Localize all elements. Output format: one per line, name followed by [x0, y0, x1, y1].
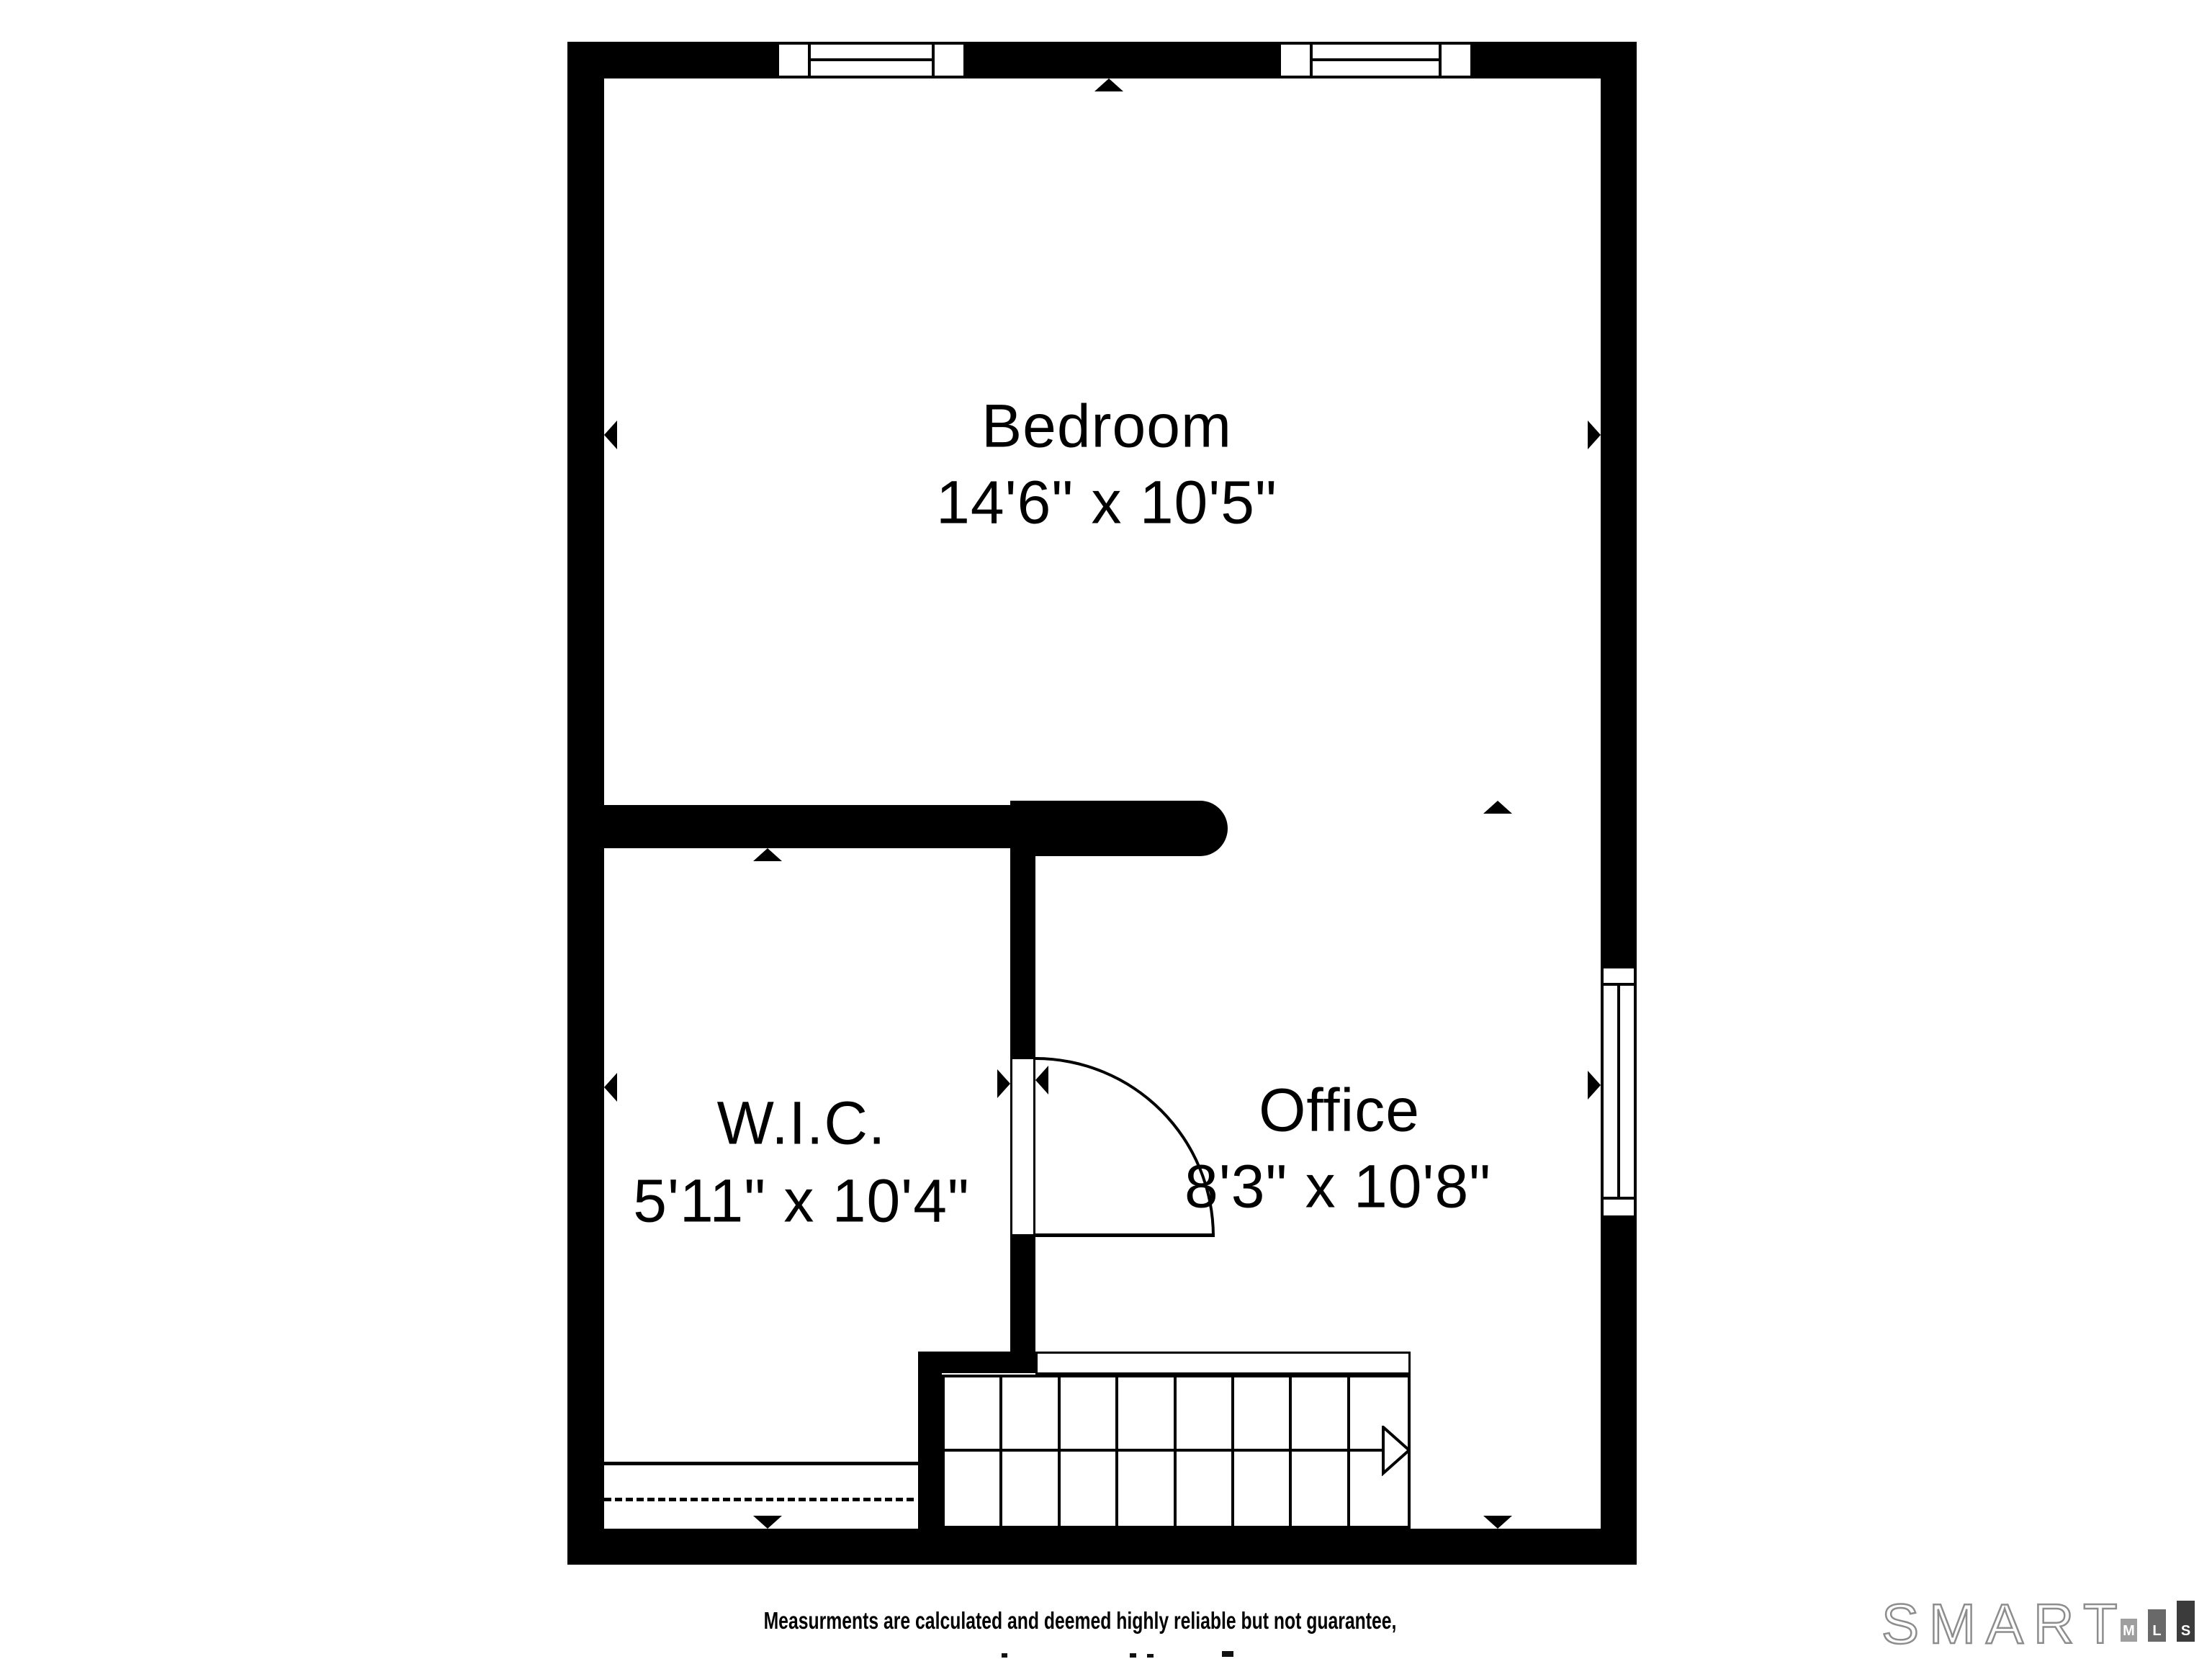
- dimension-arrow-down-icon: [753, 1516, 782, 1529]
- window-jamb-line: [1439, 45, 1442, 76]
- stair-tread: [1292, 1377, 1349, 1526]
- stair-direction-line: [942, 1449, 1386, 1452]
- stair-tread: [1177, 1377, 1234, 1526]
- clipped-text-mark: [1002, 1653, 1007, 1658]
- exterior-wall-left: [567, 42, 604, 1565]
- stair-tread: [945, 1377, 1002, 1526]
- room-dims-wic: 5'11" x 10'4": [633, 1166, 969, 1236]
- room-name-wic: W.I.C.: [717, 1089, 886, 1159]
- floor-plan-page: Bedroom 14'6" x 10'5" W.I.C. 5'11" x 10'…: [0, 0, 2212, 1659]
- stair-tread: [1118, 1377, 1176, 1526]
- smartmls-logo-l-block: L: [2148, 1609, 2166, 1642]
- room-dims-office: 8'3" x 10'8": [1184, 1152, 1491, 1222]
- stair-wall-left: [918, 1352, 942, 1529]
- stair-tread: [1061, 1377, 1118, 1526]
- room-name-office: Office: [1259, 1076, 1420, 1146]
- dimension-arrow-left-icon: [604, 1073, 617, 1102]
- stair-tread: [1234, 1377, 1292, 1526]
- logo-letter-m: M: [2123, 1623, 2135, 1640]
- dimension-arrow-down-icon: [1483, 1516, 1512, 1529]
- smartmls-logo-wordmark: SMART: [1881, 1591, 2128, 1657]
- dimension-arrow-left-icon: [1035, 1066, 1048, 1094]
- closet-shelf-line: [604, 1462, 918, 1465]
- stair-tread: [1002, 1377, 1060, 1526]
- clipped-text-mark: [1147, 1654, 1154, 1658]
- exterior-wall-bottom: [567, 1529, 1637, 1565]
- window-sash-line: [1617, 986, 1620, 1198]
- logo-letter-s: S: [2181, 1623, 2190, 1640]
- dimension-arrow-right-icon: [1588, 421, 1601, 449]
- stair-direction-arrow-icon: [1382, 1426, 1411, 1476]
- room-name-bedroom: Bedroom: [981, 392, 1232, 462]
- dimension-arrow-right-icon: [1588, 1071, 1601, 1100]
- exterior-wall-right: [1601, 42, 1637, 1565]
- room-dims-bedroom: 14'6" x 10'5": [936, 468, 1277, 538]
- stair-landing: [1035, 1352, 1411, 1375]
- window-right-wall: [1601, 966, 1637, 1218]
- door-opening: [1010, 1057, 1035, 1236]
- dimension-arrow-right-icon: [997, 1069, 1010, 1098]
- logo-letter-l: L: [2152, 1623, 2161, 1640]
- window-top-right: [1278, 42, 1473, 78]
- smartmls-logo-s-block: S: [2177, 1601, 2195, 1642]
- window-sash-line: [1313, 58, 1439, 61]
- dimension-arrow-up-icon: [1483, 801, 1512, 814]
- closet-rod-dashed-line: [604, 1498, 914, 1501]
- smartmls-logo-m-block: M: [2121, 1619, 2137, 1642]
- dimension-arrow-left-icon: [604, 421, 617, 449]
- dimension-arrow-up-icon: [753, 848, 782, 861]
- clipped-text-mark: [1222, 1651, 1233, 1657]
- window-sash-line: [811, 58, 932, 61]
- exterior-wall-top: [567, 42, 1637, 78]
- dimension-arrow-up-icon: [1094, 78, 1123, 91]
- interior-wall-bedroom-stub: [1010, 801, 1228, 856]
- staircase: [942, 1375, 1411, 1529]
- disclaimer-text: Measurments are calculated and deemed hi…: [764, 1607, 1397, 1635]
- window-jamb-line: [932, 45, 935, 76]
- clipped-text-mark: [1130, 1653, 1136, 1658]
- window-top-left: [776, 42, 966, 78]
- interior-wall-bedroom-wic: [604, 805, 1010, 848]
- door-leaf: [1035, 1233, 1215, 1237]
